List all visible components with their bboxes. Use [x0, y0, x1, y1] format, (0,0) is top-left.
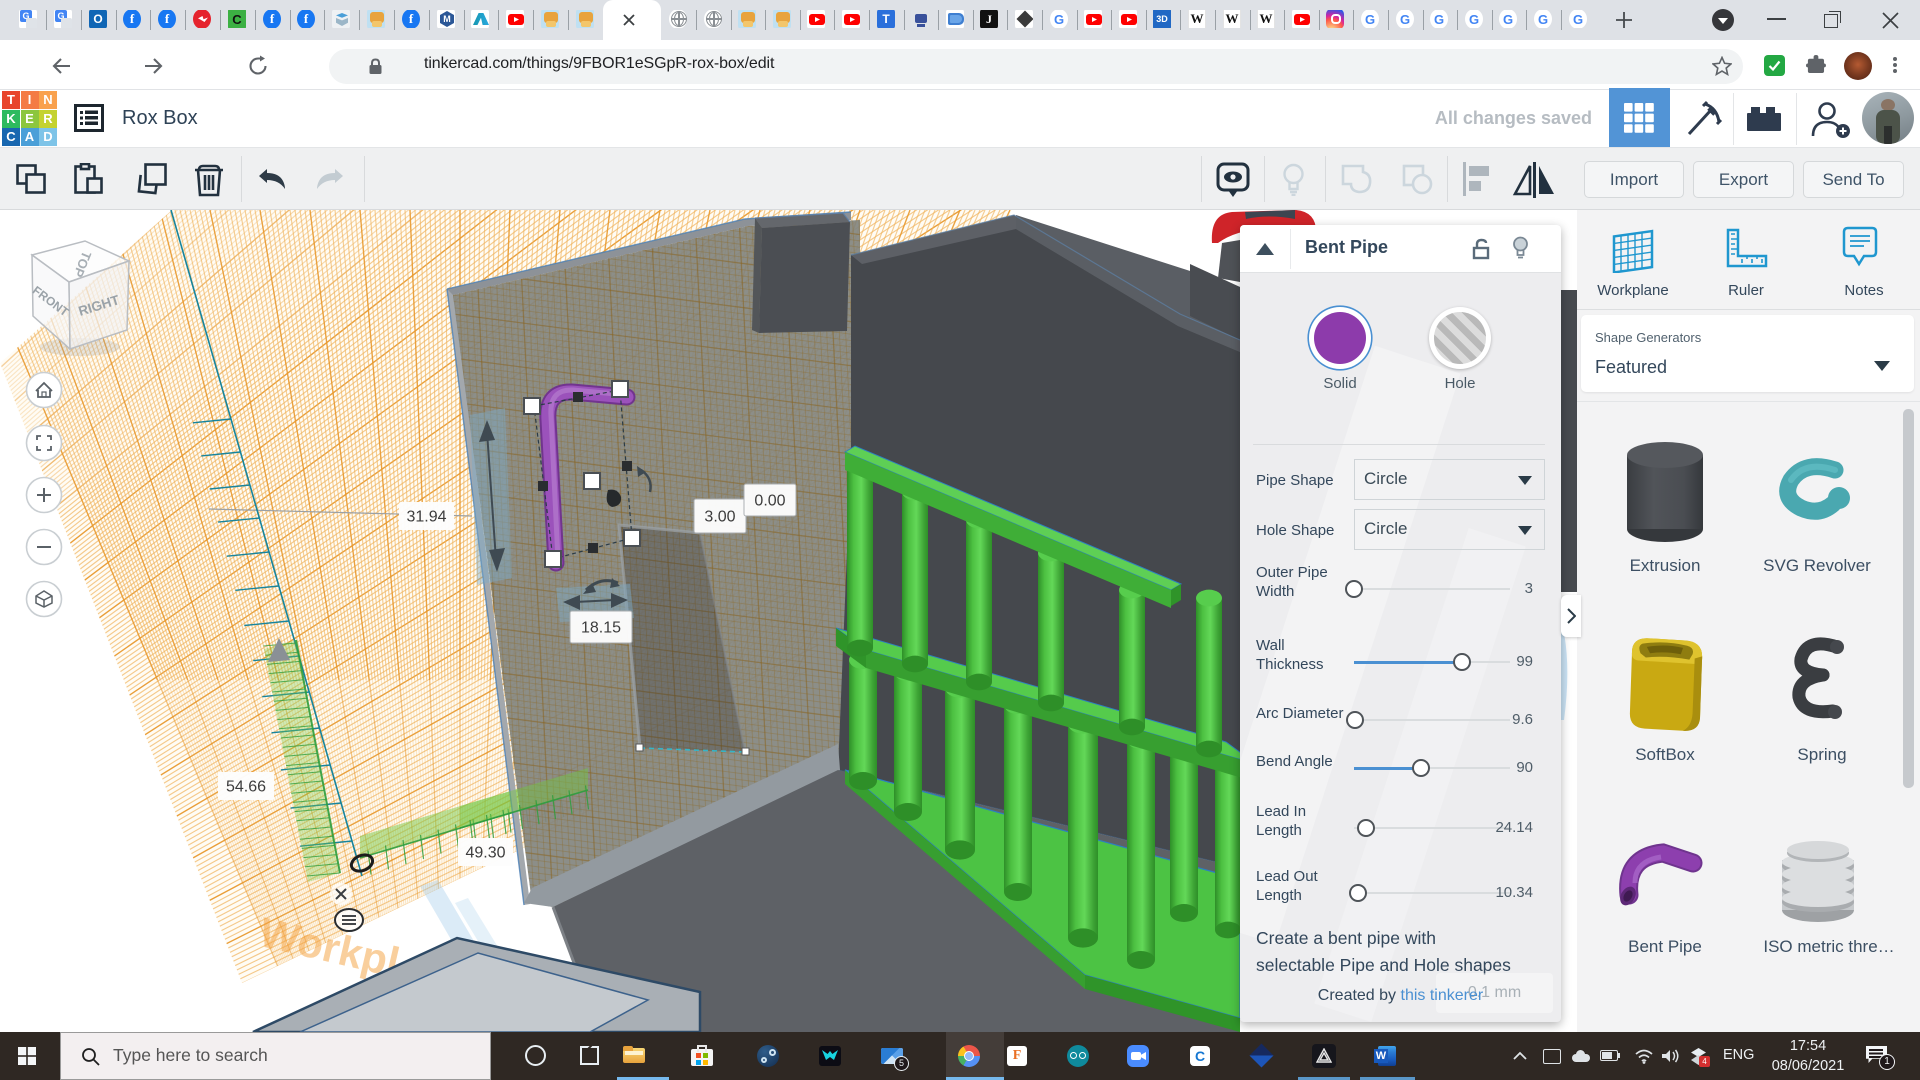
svg-text:3.00: 3.00 [704, 509, 735, 526]
svg-text:49.30: 49.30 [465, 845, 505, 862]
svg-text:54.66: 54.66 [226, 779, 266, 796]
svg-text:31.94: 31.94 [406, 509, 446, 526]
svg-text:0.00: 0.00 [754, 493, 785, 510]
svg-text:18.15: 18.15 [581, 620, 621, 637]
